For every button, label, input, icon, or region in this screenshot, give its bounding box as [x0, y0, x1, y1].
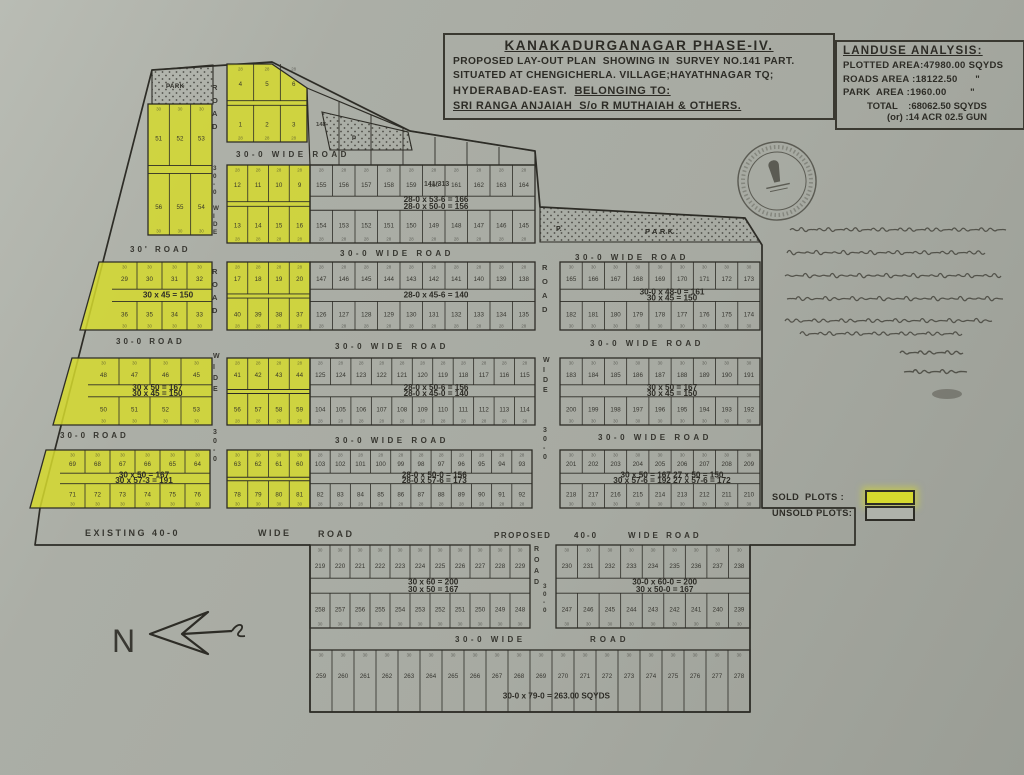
frontage-dimension: 30: [297, 502, 302, 507]
frontage-dimension: 30: [297, 453, 302, 458]
plot-number: 104: [315, 407, 326, 414]
frontage-dimension: 28: [359, 419, 364, 424]
plot-number: 17: [234, 276, 241, 283]
plot-number: 83: [337, 491, 344, 498]
frontage-dimension: 30: [693, 653, 698, 658]
frontage-dimension: 28: [386, 265, 391, 270]
plot-number: 272: [602, 673, 613, 680]
frontage-dimension: 28: [235, 237, 240, 242]
plot-number: 38: [275, 311, 282, 318]
plot-number: 65: [169, 461, 176, 468]
plot-number: 48: [100, 372, 107, 379]
frontage-dimension: 30: [318, 548, 323, 553]
frontage-dimension: 28: [235, 168, 240, 173]
plot-number: 131: [429, 311, 440, 318]
north-label: N: [112, 623, 135, 659]
plot-number: 80: [275, 491, 282, 498]
frontage-dimension: 30: [569, 324, 574, 329]
frontage-dimension: 28: [297, 361, 302, 366]
frontage-dimension: 30: [702, 361, 707, 366]
frontage-dimension: 30: [746, 502, 751, 507]
plot-number: 278: [734, 673, 745, 680]
plot-block-M4: 1251241231221211201191181171161152828282…: [310, 358, 535, 425]
handwritten-line: [785, 319, 992, 323]
plot-block-rowC-yellow: 17181920282828284039383728282828: [227, 262, 310, 330]
plot-number: 203: [610, 461, 621, 468]
road-label: 30-0 WIDE: [455, 635, 526, 644]
frontage-dimension: 30: [613, 453, 618, 458]
plot-number: 265: [448, 673, 459, 680]
plot-number: 41: [234, 372, 241, 379]
frontage-dimension: 30: [276, 502, 281, 507]
plot-number: 155: [316, 182, 327, 189]
road-label: 30-0 WIDE ROAD: [335, 436, 449, 445]
road-label: 30-0 WIDE ROAD: [335, 342, 449, 351]
frontage-dimension: 30: [715, 548, 720, 553]
plot-number: 144: [384, 276, 395, 283]
road-label-vertical: D: [212, 306, 218, 315]
park-label: PARK.: [645, 227, 680, 236]
landuse-analysis-box: LANDUSE ANALYSIS: PLOTTED AREA:47980.00 …: [835, 40, 1024, 130]
frontage-dimension: 30: [145, 453, 150, 458]
frontage-dimension: 30: [724, 265, 729, 270]
frontage-dimension: 28: [431, 265, 436, 270]
frontage-dimension: 28: [297, 324, 302, 329]
road-label-vertical: D: [542, 305, 548, 314]
frontage-dimension: 30: [145, 502, 150, 507]
frontage-dimension: 30: [163, 361, 168, 366]
plot-number: 147: [474, 222, 485, 229]
frontage-dimension: 30: [319, 653, 324, 658]
plot-number: 185: [610, 372, 621, 379]
plot-number: 250: [475, 606, 486, 613]
frontage-dimension: 30: [163, 419, 168, 424]
plot-number: 225: [435, 563, 446, 570]
frontage-dimension: 30: [746, 419, 751, 424]
plot-number: 187: [655, 372, 666, 379]
frontage-dimension: 28: [276, 168, 281, 173]
north-arrow-shaft: [182, 631, 232, 634]
frontage-dimension: 28: [276, 419, 281, 424]
frontage-dimension: 30: [70, 502, 75, 507]
landuse-title: LANDUSE ANALYSIS:: [843, 45, 1017, 57]
plot-number: 85: [377, 491, 384, 498]
frontage-dimension: 30: [276, 453, 281, 458]
road-label: ROAD: [318, 529, 355, 539]
frontage-dimension: 30: [672, 622, 677, 627]
plot-number: 197: [633, 407, 644, 414]
plot-block-lb1: 515253303030565554303030: [148, 104, 212, 235]
plot-number: 57: [255, 407, 262, 414]
plot-number: 5: [265, 81, 269, 88]
frontage-dimension: 28: [521, 237, 526, 242]
road-label-vertical: D: [213, 221, 218, 228]
frontage-dimension: 30: [398, 622, 403, 627]
frontage-dimension: 28: [297, 419, 302, 424]
plot-number: 50: [100, 407, 107, 414]
frontage-dimension: 28: [364, 324, 369, 329]
frontage-dimension: 30: [147, 265, 152, 270]
frontage-dimension: 30: [737, 548, 742, 553]
frontage-dimension: 30: [178, 107, 183, 112]
frontage-dimension: 30: [680, 502, 685, 507]
road-label: ROAD: [590, 635, 630, 644]
frontage-dimension: 28: [378, 502, 383, 507]
plot-block-rowD-yellow: 41424344282828285657585928282828: [227, 358, 310, 425]
plot-number: 177: [677, 311, 688, 318]
plot-number: 204: [633, 461, 644, 468]
plot-number: 223: [395, 563, 406, 570]
frontage-dimension: 28: [454, 324, 459, 329]
frontage-dimension: 28: [441, 419, 446, 424]
plot-number: 88: [438, 491, 445, 498]
plot-number: 210: [744, 491, 755, 498]
plot-number: 34: [171, 311, 178, 318]
plot-number: 237: [713, 563, 724, 570]
frontage-dimension: 30: [120, 502, 125, 507]
frontage-dimension: 28: [400, 361, 405, 366]
frontage-dimension: 30: [451, 653, 456, 658]
frontage-dimension: 30: [651, 622, 656, 627]
park-label: P: [352, 136, 356, 142]
north-arrow: [150, 612, 245, 654]
frontage-dimension: 30: [702, 324, 707, 329]
plot-number: 145: [361, 276, 372, 283]
plot-number: 148: [451, 222, 462, 229]
frontage-dimension: 30: [418, 548, 423, 553]
frontage-dimension: 30: [658, 502, 663, 507]
plot-dimension-annotation: 30 x 45 = 150: [647, 389, 698, 398]
plot-dimension-annotation: 30 x 45 = 150: [132, 389, 183, 398]
plot-number: 78: [234, 491, 241, 498]
frontage-dimension: 28: [499, 168, 504, 173]
plot-number: 188: [677, 372, 688, 379]
legend-sold-row: SOLD PLOTS :: [772, 489, 915, 505]
plot-number: 216: [610, 491, 621, 498]
frontage-dimension: 30: [569, 419, 574, 424]
plot-number: 255: [375, 606, 386, 613]
road-label-vertical: O: [534, 557, 540, 564]
signature-line: [900, 351, 963, 355]
frontage-dimension: 28: [238, 67, 243, 72]
plot-number: 63: [234, 461, 241, 468]
frontage-dimension: 30: [591, 453, 596, 458]
plot-number: 47: [131, 372, 138, 379]
handwritten-line: [800, 332, 962, 336]
plot-number: 167: [610, 276, 621, 283]
frontage-dimension: 30: [132, 419, 137, 424]
plot-number: 162: [474, 182, 485, 189]
plot-number: 243: [648, 606, 659, 613]
plot-number: 170: [677, 276, 688, 283]
plot-number: 120: [417, 372, 428, 379]
frontage-dimension: 30: [569, 502, 574, 507]
frontage-dimension: 28: [481, 361, 486, 366]
plot-number: 143: [406, 276, 417, 283]
frontage-dimension: 28: [338, 419, 343, 424]
frontage-dimension: 30: [569, 453, 574, 458]
frontage-dimension: 30: [635, 324, 640, 329]
plot-number: 242: [669, 606, 680, 613]
plot-number: 252: [435, 606, 446, 613]
plot-block-rowB-yellow: 1211109282828281314151628282828: [227, 165, 310, 243]
frontage-dimension: 30: [122, 324, 127, 329]
plot-number: 190: [722, 372, 733, 379]
frontage-dimension: 30: [591, 419, 596, 424]
frontage-dimension: 30: [407, 653, 412, 658]
frontage-dimension: 30: [694, 548, 699, 553]
plot-number: 159: [406, 182, 417, 189]
plot-number: 51: [155, 136, 162, 143]
plot-number: 9: [298, 182, 302, 189]
frontage-dimension: 30: [358, 548, 363, 553]
frontage-dimension: 30: [194, 419, 199, 424]
plot-number: 101: [355, 461, 366, 468]
plot-number: 121: [397, 372, 408, 379]
plot-number: 11: [255, 182, 262, 189]
plot-dimension-annotation: 30 x 45 = 150: [143, 290, 194, 299]
frontage-dimension: 28: [358, 502, 363, 507]
frontage-dimension: 28: [439, 453, 444, 458]
plot-number: 1: [239, 121, 243, 128]
road-label-vertical: E: [213, 386, 218, 393]
frontage-dimension: 28: [256, 237, 261, 242]
plot-number: 126: [316, 311, 327, 318]
frontage-dimension: 28: [318, 453, 323, 458]
frontage-dimension: 30: [498, 622, 503, 627]
road-label-vertical: A: [212, 293, 218, 302]
frontage-dimension: 28: [319, 265, 324, 270]
plot-number: 114: [520, 407, 530, 414]
plot-number: 3: [292, 121, 296, 128]
frontage-dimension: 30: [680, 453, 685, 458]
frontage-dimension: 28: [431, 324, 436, 329]
frontage-dimension: 30: [658, 265, 663, 270]
plot-number: 271: [580, 673, 591, 680]
plot-number: 202: [588, 461, 599, 468]
road-label: 30-0 WIDE ROAD: [236, 150, 350, 159]
plot-number: 267: [492, 673, 503, 680]
plot-number: 262: [382, 673, 393, 680]
frontage-dimension: 30: [378, 548, 383, 553]
plot-number: 247: [562, 606, 573, 613]
frontage-dimension: 28: [502, 419, 507, 424]
frontage-dimension: 30: [256, 453, 261, 458]
plot-number: 259: [316, 673, 327, 680]
frontage-dimension: 30: [170, 502, 175, 507]
plot-number: 213: [677, 491, 688, 498]
plot-number: 201: [566, 461, 577, 468]
handwritten-line: [790, 228, 1006, 232]
plot-number: 146: [339, 276, 350, 283]
frontage-dimension: 28: [398, 502, 403, 507]
plot-number: 269: [536, 673, 547, 680]
plot-number: 42: [255, 372, 262, 379]
plot-number: 199: [588, 407, 599, 414]
plot-number: 130: [406, 311, 417, 318]
road-label-vertical: I: [543, 367, 545, 374]
frontage-dimension: 30: [172, 265, 177, 270]
plot-number: 195: [677, 407, 688, 414]
plot-number: 74: [144, 491, 151, 498]
road-label: 30-0 WIDE ROAD: [575, 253, 689, 262]
plot-number: 125: [315, 372, 326, 379]
plot-number: 221: [355, 563, 366, 570]
plot-number: 161: [451, 182, 462, 189]
plot-number: 222: [375, 563, 386, 570]
plot-number: 189: [699, 372, 710, 379]
plot-number: 103: [315, 461, 326, 468]
frontage-dimension: 28: [318, 419, 323, 424]
plot-dimension-annotation: 28-0 x 45-0 = 140: [404, 389, 469, 398]
plot-number: 273: [624, 673, 635, 680]
frontage-dimension: 30: [591, 361, 596, 366]
frontage-dimension: 30: [702, 502, 707, 507]
frontage-dimension: 28: [265, 67, 270, 72]
road-label-vertical: R: [542, 263, 548, 272]
plot-number: 245: [605, 606, 616, 613]
road-label-vertical: D: [213, 375, 218, 382]
plot-number: 182: [566, 311, 577, 318]
plot-number: 112: [479, 407, 489, 414]
plot-number: 192: [744, 407, 755, 414]
frontage-dimension: 30: [120, 453, 125, 458]
frontage-dimension: 28: [256, 419, 261, 424]
frontage-dimension: 28: [386, 237, 391, 242]
frontage-dimension: 30: [95, 502, 100, 507]
block-outline: [148, 104, 212, 235]
plot-number: 29: [121, 276, 128, 283]
plot-number: 116: [499, 372, 509, 379]
plot-number: 249: [495, 606, 506, 613]
plot-block-lb4: 6968676665643030303030307172737475763030…: [30, 450, 210, 508]
plot-number: 146: [496, 222, 507, 229]
plot-number: 142: [429, 276, 440, 283]
legend-unsold-row: UNSOLD PLOTS:: [772, 505, 915, 521]
road-label-vertical: 0: [543, 436, 547, 443]
plot-number: 58: [275, 407, 282, 414]
road-label: EXISTING 40-0: [85, 528, 180, 538]
plot-number: 263: [404, 673, 415, 680]
plot-number: 12: [234, 182, 241, 189]
plot-dimension-annotation: 28-0 x 57-6 = 173: [402, 476, 467, 485]
plot-number: 218: [566, 491, 577, 498]
frontage-dimension: 30: [178, 229, 183, 234]
plot-number: 32: [196, 276, 203, 283]
district-text: HYDERABAD-EAST.: [453, 85, 574, 97]
plot-number: 117: [479, 372, 489, 379]
frontage-dimension: 28: [459, 502, 464, 507]
frontage-dimension: 28: [318, 502, 323, 507]
frontage-dimension: 28: [338, 361, 343, 366]
plot-dimension-annotation: 30 x 45 = 150: [647, 293, 698, 302]
frontage-dimension: 30: [338, 548, 343, 553]
frontage-dimension: 28: [522, 419, 527, 424]
plot-number: 93: [518, 461, 525, 468]
road-label-vertical: 3: [213, 165, 217, 172]
frontage-dimension: 28: [291, 67, 296, 72]
plot-number: 266: [470, 673, 481, 680]
plot-number: 107: [376, 407, 387, 414]
frontage-dimension: 30: [746, 361, 751, 366]
frontage-dimension: 28: [409, 168, 414, 173]
frontage-dimension: 30: [199, 107, 204, 112]
road-label-vertical: 3: [213, 429, 217, 436]
plot-number: 276: [690, 673, 701, 680]
plot-number: 233: [626, 563, 637, 570]
plot-number: 275: [668, 673, 679, 680]
frontage-dimension: 30: [473, 653, 478, 658]
plot-number: 261: [360, 673, 371, 680]
frontage-dimension: 28: [379, 419, 384, 424]
plot-number: 19: [275, 276, 282, 283]
plot-number: 193: [722, 407, 733, 414]
plot-number: 179: [633, 311, 644, 318]
frontage-dimension: 30: [385, 653, 390, 658]
plot-number: 196: [655, 407, 666, 414]
belonging-to-text: BELONGING TO:: [574, 85, 670, 97]
plot-block-BB3: 2592602612622632642652662672682692702712…: [310, 650, 750, 712]
plot-number: 208: [722, 461, 733, 468]
plot-number: 150: [406, 222, 417, 229]
frontage-dimension: 28: [454, 237, 459, 242]
frontage-dimension: 28: [479, 453, 484, 458]
official-seal-stamp: [731, 135, 824, 228]
road-label-vertical: 3: [543, 583, 547, 590]
road-label-vertical: 0: [543, 607, 547, 614]
plot-number: 274: [646, 673, 657, 680]
plot-number: 200: [566, 407, 577, 414]
plot-number: 71: [69, 491, 76, 498]
landuse-roads-area: ROADS AREA :18122.50 ": [843, 74, 1017, 85]
frontage-dimension: 28: [276, 265, 281, 270]
frontage-dimension: 28: [256, 168, 261, 173]
plot-number: 217: [588, 491, 599, 498]
frontage-dimension: 30: [495, 653, 500, 658]
plot-number: 95: [478, 461, 485, 468]
frontage-dimension: 28: [419, 453, 424, 458]
park-label: P.: [556, 226, 562, 233]
plot-number: 171: [699, 276, 710, 283]
plot-number: 46: [162, 372, 169, 379]
scanned-layout-plan: PARKPP.PARK.4562828281232828285152533030…: [0, 0, 1024, 775]
frontage-dimension: 30: [658, 419, 663, 424]
plot-number: 119: [438, 372, 448, 379]
plot-block-M3: 1471461451441431421411401391382828282828…: [310, 262, 535, 330]
frontage-dimension: 28: [338, 453, 343, 458]
frontage-dimension: 28: [476, 168, 481, 173]
plot-number: 39: [255, 311, 262, 318]
frontage-dimension: 28: [276, 237, 281, 242]
frontage-dimension: 28: [400, 419, 405, 424]
plot-number: 35: [146, 311, 153, 318]
plot-number: 44: [296, 372, 303, 379]
plot-number: 227: [475, 563, 486, 570]
frontage-dimension: 30: [702, 265, 707, 270]
plot-number: 53: [198, 136, 205, 143]
plot-number: 87: [418, 491, 425, 498]
frontage-dimension: 30: [680, 419, 685, 424]
plot-number: 13: [234, 222, 241, 229]
frontage-dimension: 30: [724, 453, 729, 458]
frontage-dimension: 30: [170, 453, 175, 458]
frontage-dimension: 30: [564, 622, 569, 627]
frontage-dimension: 30: [613, 265, 618, 270]
plot-number: 16: [296, 222, 303, 229]
plot-number: 198: [610, 407, 621, 414]
frontage-dimension: 28: [476, 265, 481, 270]
road-label: 30-0 WIDE ROAD: [340, 249, 454, 258]
